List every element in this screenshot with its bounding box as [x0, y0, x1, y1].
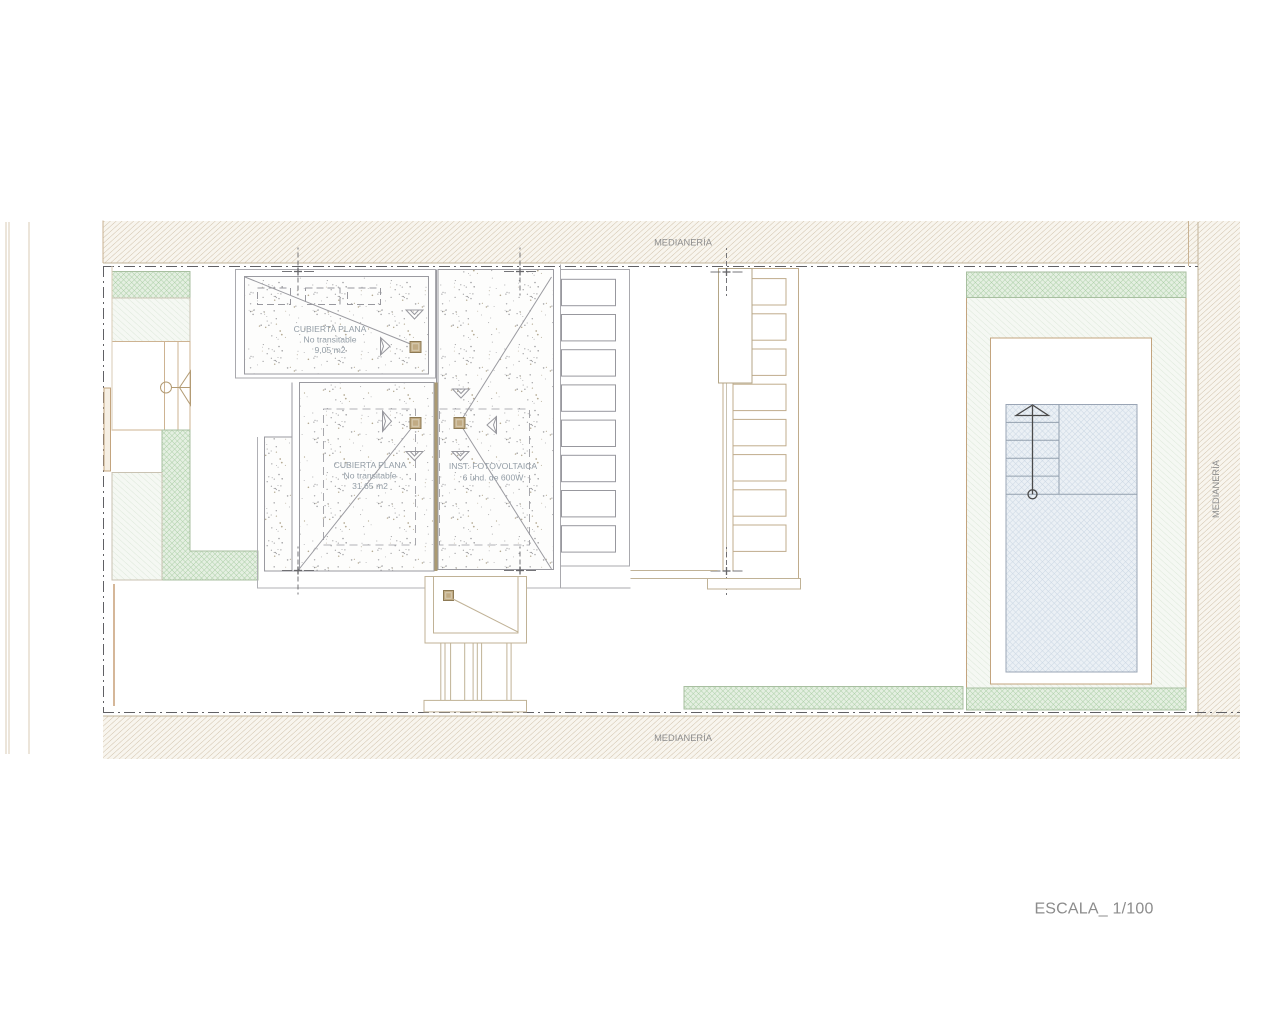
svg-text:MEDIANERÍA: MEDIANERÍA [1211, 459, 1221, 518]
svg-text:CUBIERTA PLANA: CUBIERTA PLANA [294, 324, 367, 334]
svg-text:No transitable: No transitable [303, 335, 356, 345]
svg-text:6 uhd. de 600W: 6 uhd. de 600W [463, 473, 525, 483]
svg-text:MEDIANERÍA: MEDIANERÍA [654, 238, 713, 248]
svg-text:No transitable: No transitable [343, 471, 396, 481]
svg-text:31,65 m2: 31,65 m2 [352, 481, 388, 491]
svg-text:9,05 m2: 9,05 m2 [314, 345, 345, 355]
svg-text:INST. FOTOVOLTAICA: INST. FOTOVOLTAICA [449, 461, 538, 471]
svg-text:MEDIANERÍA: MEDIANERÍA [654, 733, 713, 743]
svg-text:CUBIERTA PLANA: CUBIERTA PLANA [334, 460, 407, 470]
svg-text:ESCALA_ 1/100: ESCALA_ 1/100 [1034, 901, 1153, 918]
